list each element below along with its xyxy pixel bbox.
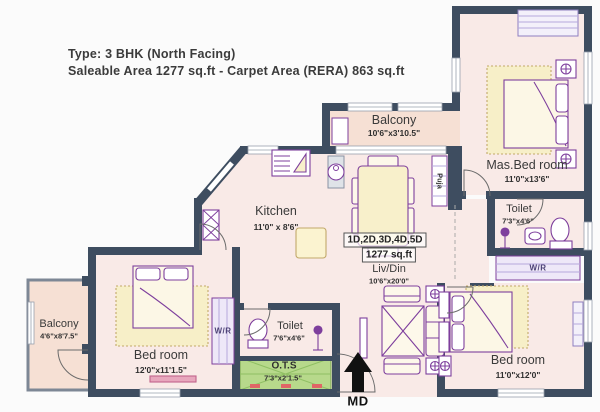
kitchen-dim: 11'0" x 8'6"	[254, 222, 299, 232]
left-balcony-label: Balcony	[39, 318, 78, 330]
master-bedroom-dim: 11'0"x13'6"	[505, 174, 550, 184]
plan-header: Type: 3 BHK (North Facing) Saleable Area…	[68, 46, 405, 80]
right-bedroom-dim: 11'0"x12'0"	[496, 370, 541, 380]
main-door-label: MD	[347, 394, 368, 409]
unit-variants-badge: 1D,2D,3D,4D,5D	[343, 233, 426, 248]
living-dining-dim: 10'6"x20'0"	[369, 277, 409, 286]
balcony-seat	[332, 118, 348, 144]
common-toilet-dim: 7'6"x4'6"	[273, 334, 305, 343]
common-toilet-label: Toilet	[277, 320, 303, 332]
wash-basin	[328, 156, 344, 188]
wardrobe-right-label: W/R	[529, 264, 546, 273]
puja-label: Puja	[436, 173, 445, 189]
kitchen-label: Kitchen	[255, 204, 297, 218]
master-toilet-label: Toilet	[506, 203, 532, 215]
ots-dim: 7'3"x2'1.5"	[264, 374, 302, 383]
ledge-hatch-top-right	[518, 10, 578, 36]
ledge-hatch-right-bedroom	[573, 302, 583, 346]
living-dining-label: Liv/Din	[372, 263, 406, 275]
unit-area-badge: 1277 sq.ft	[362, 248, 416, 263]
left-bedroom-label: Bed room	[134, 348, 188, 362]
floorplan-page: Type: 3 BHK (North Facing) Saleable Area…	[0, 0, 600, 412]
right-bedroom-label: Bed room	[491, 353, 545, 367]
balcony-top-label: Balcony	[372, 113, 416, 127]
left-balcony-dim: 4'6"x8'7.5"	[40, 332, 78, 341]
balcony-top-dim: 10'6"x3'10.5"	[368, 128, 420, 138]
master-bed-furniture	[487, 60, 576, 168]
left-bedroom-dim: 12'0"x11'1.5"	[135, 365, 187, 375]
master-toilet-dim: 7'3"x4'6"	[502, 217, 534, 226]
wardrobe-left-label: W/R	[214, 327, 231, 336]
master-bedroom-label: Mas.Bed room	[486, 158, 567, 172]
plan-type-text: Type: 3 BHK (North Facing)	[68, 46, 405, 63]
plan-area-text: Saleable Area 1277 sq.ft - Carpet Area (…	[68, 63, 405, 80]
ots-label: O.T.S	[271, 361, 296, 372]
